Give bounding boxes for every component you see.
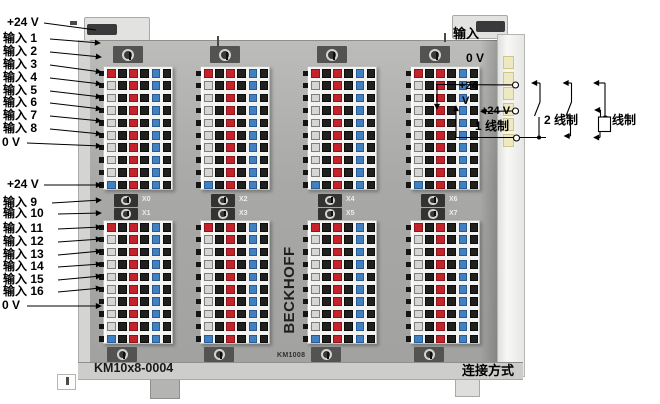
terminal-square-red [226,297,235,306]
terminal-square-black [447,81,456,90]
screw-slot [327,352,329,359]
terminal-square-blue [249,297,258,306]
terminal-square-black [322,260,331,269]
terminal-square-gray [204,248,213,257]
screw [317,46,347,63]
terminal-square-blue [152,131,161,140]
contact-tick [303,157,308,163]
terminal-row [201,320,269,332]
terminal-square-blue [152,119,161,128]
terminal-square-black [470,181,479,190]
terminal-square-gray [311,156,320,165]
terminal-square-red [226,69,235,78]
terminal-square-gray [204,260,213,269]
screw-head [121,196,131,206]
terminal-square-black [425,156,434,165]
terminal-row [411,283,479,295]
terminal-square-black [140,81,149,90]
terminal-square-black [425,248,434,257]
terminal-square-red [436,156,445,165]
terminal-square-black [215,168,224,177]
terminal-square-gray [107,248,116,257]
terminal-square-gray [204,297,213,306]
screw-slot [434,197,436,203]
terminal-row [411,179,479,191]
terminal-row [308,141,376,153]
terminal-square-black [322,119,331,128]
terminal-square-black [470,143,479,152]
terminal-square-gray [311,260,320,269]
terminal-square-red [333,235,342,244]
terminal-square-black [237,131,246,140]
terminal-square-black [367,131,376,140]
terminal-square-gray [107,285,116,294]
terminal-square-black [470,168,479,177]
terminal-row [308,92,376,104]
terminal-square-red [436,260,445,269]
screw [211,208,235,221]
contact-tick [406,237,411,243]
terminal-square-black [215,322,224,331]
terminal-square-black [140,181,149,190]
terminal-square-black [118,335,127,344]
terminal-square-blue [356,297,365,306]
terminal-square-gray [414,273,423,282]
terminal-square-black [322,156,331,165]
terminal-square-black [322,223,331,232]
contact-tick [99,274,104,280]
terminal-square-black [215,81,224,90]
terminal-square-blue [204,335,213,344]
screw [114,208,138,221]
terminal-square-red [226,131,235,140]
module-right-edge [497,34,525,377]
terminal-square-black [215,181,224,190]
contact-tick [196,157,201,163]
terminal-square-black [447,168,456,177]
terminal-square-black [344,106,353,115]
terminal-square-blue [459,297,468,306]
terminal-square-black [425,322,434,331]
terminal-square-black [163,131,172,140]
terminal-square-black [470,260,479,269]
terminal-square-red [333,297,342,306]
contact-tick [406,157,411,163]
screw-head [326,49,338,61]
terminal-square-red [129,310,138,319]
contact-tick [99,249,104,255]
terminal-square-black [140,106,149,115]
terminal-square-blue [459,248,468,257]
contact-tick [406,262,411,268]
signal-label: +24 V [7,15,39,29]
terminal-square-black [344,156,353,165]
terminal-square-gray [107,273,116,282]
contact-tick [99,133,104,139]
terminal-square-gray [204,143,213,152]
terminal-square-red [436,131,445,140]
terminal-square-black [447,119,456,128]
terminal-square-blue [356,156,365,165]
terminal-square-red [311,69,320,78]
contact-tick [99,120,104,126]
terminal-square-black [118,260,127,269]
terminal-square-red [129,106,138,115]
x-label: X0 [142,196,151,203]
terminal-row [201,166,269,178]
terminal-square-black [425,235,434,244]
terminal-row [411,233,479,245]
terminal-square-black [344,285,353,294]
terminal-square-gray [311,273,320,282]
contact-tick [303,262,308,268]
terminal-square-red [333,69,342,78]
terminal-square-red [333,81,342,90]
terminal-square-black [425,310,434,319]
terminal-square-red [226,273,235,282]
terminal-square-black [140,94,149,103]
signal-label: 0 V [2,298,20,312]
terminal-square-gray [414,94,423,103]
contact-tick [406,120,411,126]
terminal-row [411,117,479,129]
terminal-square-black [344,69,353,78]
terminal-square-black [118,143,127,152]
terminal-square-black [215,131,224,140]
terminal-square-black [163,310,172,319]
terminal-square-black [367,168,376,177]
terminal-square-black [322,143,331,152]
terminal-square-black [140,156,149,165]
terminal-square-black [237,223,246,232]
terminal-square-black [215,223,224,232]
contact-tick [406,311,411,317]
terminal-square-black [215,143,224,152]
terminal-square-black [367,106,376,115]
terminal-square-red [226,106,235,115]
terminal-square-red [333,94,342,103]
terminal-square-blue [356,335,365,344]
terminal-square-black [260,322,269,331]
terminal-square-gray [204,81,213,90]
terminal-square-red [129,260,138,269]
terminal-square-red [436,235,445,244]
terminal-square-black [447,260,456,269]
signal-label: 输入 2 [3,44,37,58]
terminal-row [411,308,479,320]
terminal-square-blue [356,69,365,78]
terminal-square-gray [311,322,320,331]
terminal-row [308,320,376,332]
contact-tick [196,170,201,176]
terminal-square-black [367,181,376,190]
contact-tick [99,262,104,268]
contact-tick [303,133,308,139]
terminal-square-red [129,335,138,344]
terminal-row [104,129,172,141]
terminal-square-red [436,143,445,152]
terminal-square-black [118,181,127,190]
terminal-square-black [322,273,331,282]
terminal-square-black [470,156,479,165]
terminal-row [201,129,269,141]
latch-top-left [87,24,117,35]
terminal-square-gray [414,143,423,152]
terminal-square-red [436,168,445,177]
terminal-square-black [237,156,246,165]
terminal-row [104,92,172,104]
terminal-row [308,104,376,116]
contact-tick [196,287,201,293]
terminal-square-black [447,297,456,306]
terminal-square-black [215,310,224,319]
screw-head [428,196,438,206]
terminal-row [308,258,376,270]
terminal-square-black [322,248,331,257]
terminal-square-blue [152,106,161,115]
terminal-row [411,154,479,166]
contact-tick [406,299,411,305]
terminal-square-blue [249,168,258,177]
terminal-square-gray [204,131,213,140]
terminal-square-red [333,223,342,232]
terminal-square-blue [249,310,258,319]
contact-tick [196,324,201,330]
terminal-square-red [333,285,342,294]
terminal-square-red [129,235,138,244]
screw [420,46,450,63]
terminal-square-red [311,223,320,232]
terminal-square-blue [356,94,365,103]
terminal-square-black [215,273,224,282]
terminal-square-black [447,156,456,165]
terminal-square-blue [249,106,258,115]
terminal-square-black [140,248,149,257]
part-number-label: KM10x8-0004 [94,361,173,375]
terminal-square-blue [356,119,365,128]
terminal-square-red [436,81,445,90]
terminal-square-black [260,94,269,103]
terminal-square-gray [311,235,320,244]
terminal-square-black [425,335,434,344]
terminal-row [104,117,172,129]
one-wire-label: 1 线制 [475,119,509,133]
terminal-square-red [333,335,342,344]
terminal-square-blue [356,285,365,294]
terminal-square-black [470,94,479,103]
signal-label: 输入 12 [3,234,44,248]
terminal-square-black [367,310,376,319]
terminal-square-blue [152,248,161,257]
terminal-row [411,258,479,270]
terminal-square-blue [152,69,161,78]
screw-head [218,209,228,219]
terminal-square-black [322,310,331,319]
terminal-square-gray [107,106,116,115]
terminal-square-black [425,181,434,190]
terminal-square-blue [459,235,468,244]
screw [318,194,342,207]
terminal-square-red [204,69,213,78]
screw-slot [331,211,333,217]
terminal-square-black [322,106,331,115]
terminal-square-black [344,310,353,319]
terminal-square-black [163,297,172,306]
terminal-square-black [470,223,479,232]
terminal-square-black [260,273,269,282]
terminal-square-black [260,106,269,115]
terminal-square-black [344,131,353,140]
terminal-square-blue [152,260,161,269]
terminal-square-black [118,285,127,294]
contact-tick [406,170,411,176]
screw-head [325,196,335,206]
screw-head [428,209,438,219]
contact-tick [196,145,201,151]
terminal-square-black [163,81,172,90]
screw-head [429,49,441,61]
terminal-square-black [260,310,269,319]
terminal-row [201,246,269,258]
terminal-square-black [140,285,149,294]
terminal-square-blue [152,297,161,306]
terminal-square-black [322,81,331,90]
signal-label: 输入 7 [3,108,37,122]
terminal-row [308,295,376,307]
terminal-square-gray [414,156,423,165]
screw-head [214,349,225,360]
terminal-square-black [163,143,172,152]
terminal-square-gray [107,94,116,103]
terminal-square-black [344,181,353,190]
terminal-square-gray [414,285,423,294]
terminal-square-black [447,94,456,103]
terminal-square-black [367,322,376,331]
terminal-square-red [226,119,235,128]
terminal-square-red [129,248,138,257]
terminal-square-red [107,223,116,232]
top-edge-tick-2 [444,33,446,42]
terminal-square-black [118,168,127,177]
terminal-square-black [163,119,172,128]
terminal-square-black [425,106,434,115]
terminal-square-black [215,335,224,344]
edge-contact-pad [503,87,514,100]
signal-label: 输入 4 [3,70,37,84]
terminal-square-black [237,143,246,152]
terminal-square-black [118,297,127,306]
terminal-square-gray [204,94,213,103]
terminal-row [201,92,269,104]
terminal-row [104,179,172,191]
contact-tick [303,274,308,280]
terminal-square-black [367,143,376,152]
terminal-row [201,79,269,91]
terminal-row [201,117,269,129]
terminal-square-black [260,235,269,244]
terminal-square-black [140,119,149,128]
terminal-strip [307,220,377,344]
terminal-square-blue [459,223,468,232]
terminal-square-blue [249,322,258,331]
terminal-square-black [260,181,269,190]
terminal-square-red [436,335,445,344]
terminal-square-red [436,248,445,257]
terminal-square-black [118,310,127,319]
terminal-row [308,308,376,320]
terminal-square-red [333,322,342,331]
terminal-square-black [447,285,456,294]
contact-tick [303,182,308,188]
terminal-square-red [226,156,235,165]
screw-slot [430,352,432,359]
contact-tick [303,249,308,255]
three-wire-label: 3 线制 [602,113,636,127]
terminal-row [201,221,269,233]
terminal-square-gray [414,297,423,306]
terminal-square-black [215,156,224,165]
terminal-square-blue [152,156,161,165]
terminal-square-gray [204,285,213,294]
signal-label: 输入 6 [3,95,37,109]
terminal-square-black [260,260,269,269]
terminal-square-black [344,260,353,269]
two-wire-label: 2 线制 [544,113,578,127]
terminal-row [201,333,269,345]
terminal-square-black [237,69,246,78]
terminal-square-black [215,235,224,244]
terminal-square-blue [356,235,365,244]
terminal-square-blue [356,223,365,232]
connection-method-label: 连接方式 [462,360,514,379]
terminal-square-blue [152,273,161,282]
terminal-square-black [425,273,434,282]
contact-tick [303,336,308,342]
contact-tick [303,95,308,101]
terminal-square-black [237,297,246,306]
contact-tick [196,182,201,188]
terminal-square-gray [414,119,423,128]
terminal-square-gray [107,81,116,90]
screw-head [218,196,228,206]
terminal-square-black [140,310,149,319]
terminal-row [104,333,172,345]
terminal-square-red [226,94,235,103]
model-label: KM1008 [277,352,305,359]
terminal-square-black [237,181,246,190]
terminal-row [308,154,376,166]
screw-head [117,349,128,360]
terminal-square-black [118,69,127,78]
terminal-square-black [140,131,149,140]
terminal-square-black [367,285,376,294]
junction-dot [537,136,541,140]
terminal-square-red [226,81,235,90]
terminal-square-gray [107,168,116,177]
terminal-square-black [118,94,127,103]
terminal-square-red [129,69,138,78]
terminal-square-black [470,310,479,319]
terminal-square-blue [152,322,161,331]
terminal-square-black [447,273,456,282]
terminal-square-gray [204,273,213,282]
contact-tick [406,324,411,330]
terminal-row [201,295,269,307]
terminal-square-red [226,322,235,331]
terminal-square-black [260,69,269,78]
terminal-square-gray [311,131,320,140]
terminal-row [308,246,376,258]
